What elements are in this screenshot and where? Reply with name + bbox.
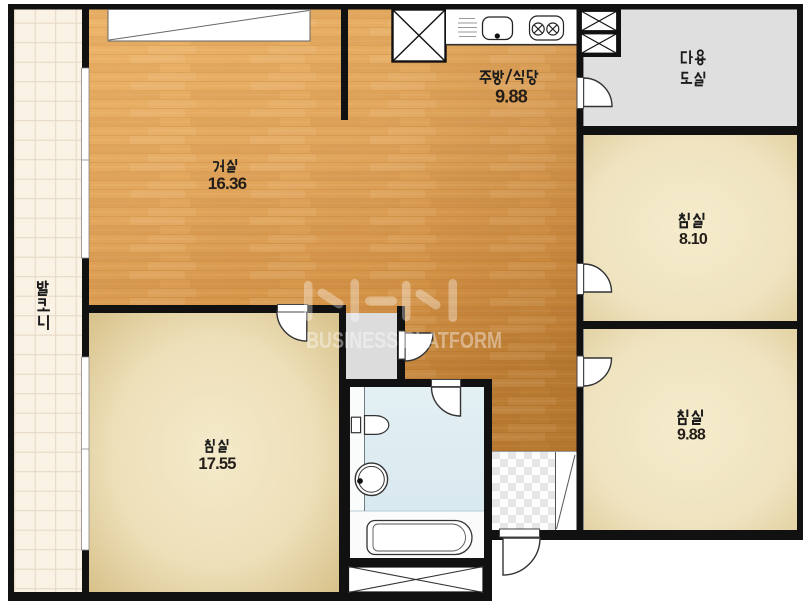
svg-text:17.55: 17.55 <box>198 455 236 473</box>
svg-text:8.10: 8.10 <box>679 231 708 248</box>
svg-text:9.88: 9.88 <box>677 427 706 444</box>
svg-text:16.36: 16.36 <box>208 174 247 193</box>
svg-text:BUSINESS PLATFORM: BUSINESS PLATFORM <box>306 327 502 353</box>
svg-text:9.88: 9.88 <box>495 87 528 107</box>
